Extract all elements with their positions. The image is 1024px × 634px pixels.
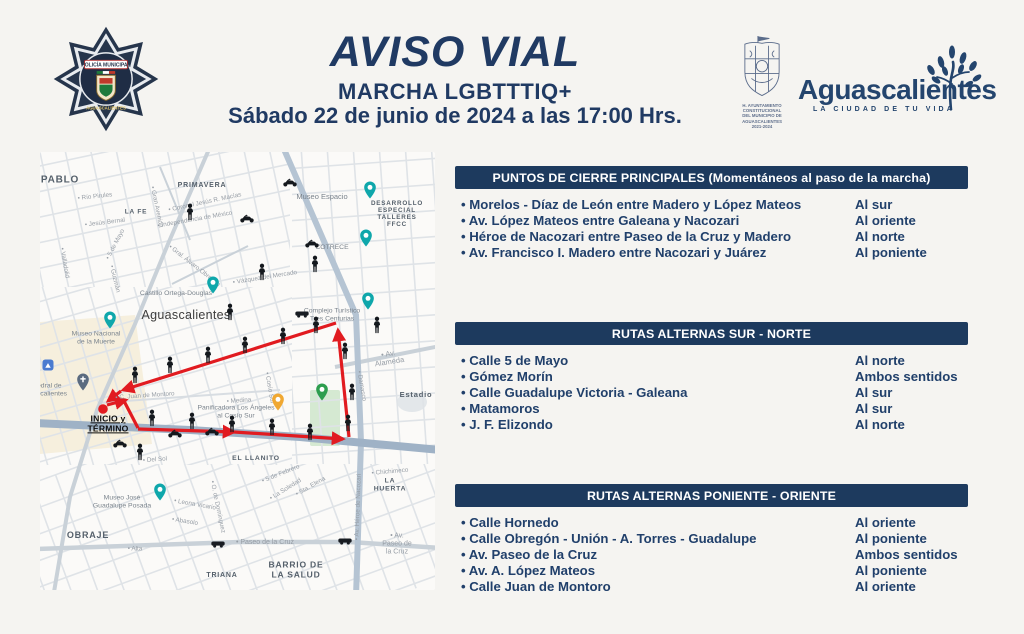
police-officer-icon: [226, 304, 235, 321]
direction-label: Al oriente: [855, 515, 968, 530]
map-label: COTRECE: [315, 244, 348, 252]
car-icon: [338, 537, 353, 545]
street-name: J. F. Elizondo: [455, 417, 855, 432]
teal-pin-icon: [207, 276, 220, 294]
street-name: Gómez Morín: [455, 369, 855, 384]
police-officer-icon: [186, 204, 195, 221]
street-name: Av. A. López Mateos: [455, 563, 855, 578]
route-row: J. F. ElizondoAl norte: [455, 416, 968, 432]
street-name: Héroe de Nacozari entre Paseo de la Cruz…: [455, 229, 855, 244]
car-icon: [211, 540, 226, 548]
police-officer-icon: [131, 367, 140, 384]
teal-pin-icon: [362, 292, 375, 310]
car-icon: [295, 310, 310, 318]
police-officer-icon: [373, 317, 382, 334]
police-officer-icon: [166, 357, 175, 374]
crest-caption-line3: 2021-2024: [726, 124, 798, 129]
orange-pin-icon: [272, 393, 285, 411]
teal-pin-icon: [364, 181, 377, 199]
map-label: Alta: [122, 545, 142, 552]
map-label: PRIMAVERA: [178, 182, 227, 190]
direction-label: Ambos sentidos: [855, 547, 968, 562]
route-row: Av. López Mateos entre Galeana y Nacozar…: [455, 212, 968, 228]
map-label: Catedral de Aguascalientes: [40, 382, 67, 397]
aguascalientes-city-logo: Aguascalientes LA CIUDAD DE TU VIDA: [795, 40, 995, 120]
police-motorcycle-icon: [304, 238, 320, 248]
route-row: Calle Juan de MontoroAl oriente: [455, 578, 968, 594]
map-label: Museo Nacional de la Muerte: [72, 330, 121, 345]
map-label: BARRIO DE LA SALUD: [269, 560, 324, 579]
direction-label: Al poniente: [855, 531, 968, 546]
route-row: Av. A. López MateosAl poniente: [455, 562, 968, 578]
police-motorcycle-icon: [204, 426, 220, 436]
crest-icon: [733, 36, 791, 98]
route-row: Calle Obregón - Unión - A. Torres - Guad…: [455, 530, 968, 546]
police-officer-icon: [188, 413, 197, 430]
route-row: Calle Guadalupe Victoria - GaleanaAl sur: [455, 384, 968, 400]
direction-label: Al oriente: [855, 579, 968, 594]
direction-label: Al norte: [855, 353, 968, 368]
green-pin-icon: [316, 383, 329, 401]
section-closures: PUNTOS DE CIERRE PRINCIPALES (Momentáneo…: [455, 166, 968, 260]
map-label: LA FE: [125, 208, 148, 215]
street-name: Av. López Mateos entre Galeana y Nacozar…: [455, 213, 855, 228]
map-label: OBRAJE: [67, 530, 109, 540]
street-name: Av. Francisco I. Madero entre Nacozari y…: [455, 245, 855, 260]
police-officer-icon: [241, 337, 250, 354]
route-row: Av. Paseo de la CruzAmbos sentidos: [455, 546, 968, 562]
crest-caption-line1: H. AYUNTAMIENTO CONSTITUCIONAL: [726, 103, 798, 113]
map-label: LA HUERTA: [368, 477, 413, 492]
direction-label: Al sur: [855, 401, 968, 416]
police-officer-icon: [348, 384, 357, 401]
section-closures-header: PUNTOS DE CIERRE PRINCIPALES (Momentáneo…: [455, 166, 968, 189]
section-alt-south-north-header: RUTAS ALTERNAS SUR - NORTE: [455, 322, 968, 345]
street-name: Morelos - Díaz de León entre Madero y Ló…: [455, 197, 855, 212]
route-row: MatamorosAl sur: [455, 400, 968, 416]
map-label: Estadio: [400, 391, 433, 399]
map-label: EL LLANITO: [232, 455, 280, 463]
route-row: Morelos - Díaz de León entre Madero y Ló…: [455, 196, 968, 212]
map-label: Aguascalientes: [142, 308, 231, 322]
police-motorcycle-icon: [167, 428, 183, 438]
teal-pin-icon: [104, 311, 117, 329]
section-alt-routes-west-east: RUTAS ALTERNAS PONIENTE - ORIENTE Calle …: [455, 484, 968, 594]
city-logo-wordmark: Aguascalientes: [798, 74, 996, 106]
teal-pin-icon: [360, 229, 373, 247]
police-officer-icon: [268, 419, 277, 436]
direction-label: Al poniente: [855, 563, 968, 578]
police-motorcycle-icon: [112, 438, 128, 448]
museum-pin-icon: [43, 360, 54, 371]
direction-label: Al norte: [855, 229, 968, 244]
direction-label: Al sur: [855, 385, 968, 400]
route-row: Calle 5 de MayoAl norte: [455, 352, 968, 368]
police-officer-icon: [228, 416, 237, 433]
map-label: TRIANA: [206, 572, 237, 580]
municipal-crest-logo: H. AYUNTAMIENTO CONSTITUCIONAL DEL MUNIC…: [726, 36, 798, 129]
church-pin-icon: [77, 373, 90, 391]
map-label: DESARROLLO ESPECIAL TALLERES FFCC: [371, 200, 423, 228]
police-officer-icon: [258, 264, 267, 281]
crest-caption-line2: DEL MUNICIPIO DE AGUASCALIENTES: [726, 113, 798, 123]
teal-pin-icon: [154, 483, 167, 501]
route-row: Av. Francisco I. Madero entre Nacozari y…: [455, 244, 968, 260]
direction-label: Ambos sentidos: [855, 369, 968, 384]
section-alt-west-east-header: RUTAS ALTERNAS PONIENTE - ORIENTE: [455, 484, 968, 507]
police-officer-icon: [312, 317, 321, 334]
direction-label: Al norte: [855, 417, 968, 432]
start-finish-label: INICIO y TÉRMINO: [87, 414, 128, 433]
street-name: Calle Obregón - Unión - A. Torres - Guad…: [455, 531, 855, 546]
police-officer-icon: [279, 328, 288, 345]
route-row: Héroe de Nacozari entre Paseo de la Cruz…: [455, 228, 968, 244]
street-name: Av. Paseo de la Cruz: [455, 547, 855, 562]
map: PABLORío PirulesPRIMAVERALA FECoronel Je…: [40, 152, 435, 590]
street-name: Calle Hornedo: [455, 515, 855, 530]
street-name: Calle Juan de Montoro: [455, 579, 855, 594]
route-row: Calle HornedoAl oriente: [455, 514, 968, 530]
street-name: Matamoros: [455, 401, 855, 416]
police-officer-icon: [306, 424, 315, 441]
route-start-dot: [98, 404, 108, 414]
police-officer-icon: [341, 343, 350, 360]
map-label: Museo Espacio: [296, 193, 347, 201]
map-label: Paseo de la Cruz: [230, 539, 294, 547]
police-officer-icon: [344, 415, 353, 432]
map-label: Av. Paseo de la Cruz: [374, 532, 415, 555]
street-name: Calle 5 de Mayo: [455, 353, 855, 368]
direction-label: Al oriente: [855, 213, 968, 228]
city-logo-tagline: LA CIUDAD DE TU VIDA: [813, 106, 955, 113]
section-alt-routes-south-north: RUTAS ALTERNAS SUR - NORTE Calle 5 de Ma…: [455, 322, 968, 432]
police-officer-icon: [136, 444, 145, 461]
direction-label: Al sur: [855, 197, 968, 212]
route-row: Gómez MorínAmbos sentidos: [455, 368, 968, 384]
map-label: Castillo Ortega-Douglas: [140, 290, 212, 298]
police-officer-icon: [311, 256, 320, 273]
street-name: Calle Guadalupe Victoria - Galeana: [455, 385, 855, 400]
direction-label: Al poniente: [855, 245, 968, 260]
police-motorcycle-icon: [282, 177, 298, 187]
police-motorcycle-icon: [239, 213, 255, 223]
map-label: PABLO: [41, 174, 79, 185]
police-officer-icon: [148, 410, 157, 427]
police-officer-icon: [204, 347, 213, 364]
map-label: Museo José Guadalupe Posada: [93, 494, 151, 509]
